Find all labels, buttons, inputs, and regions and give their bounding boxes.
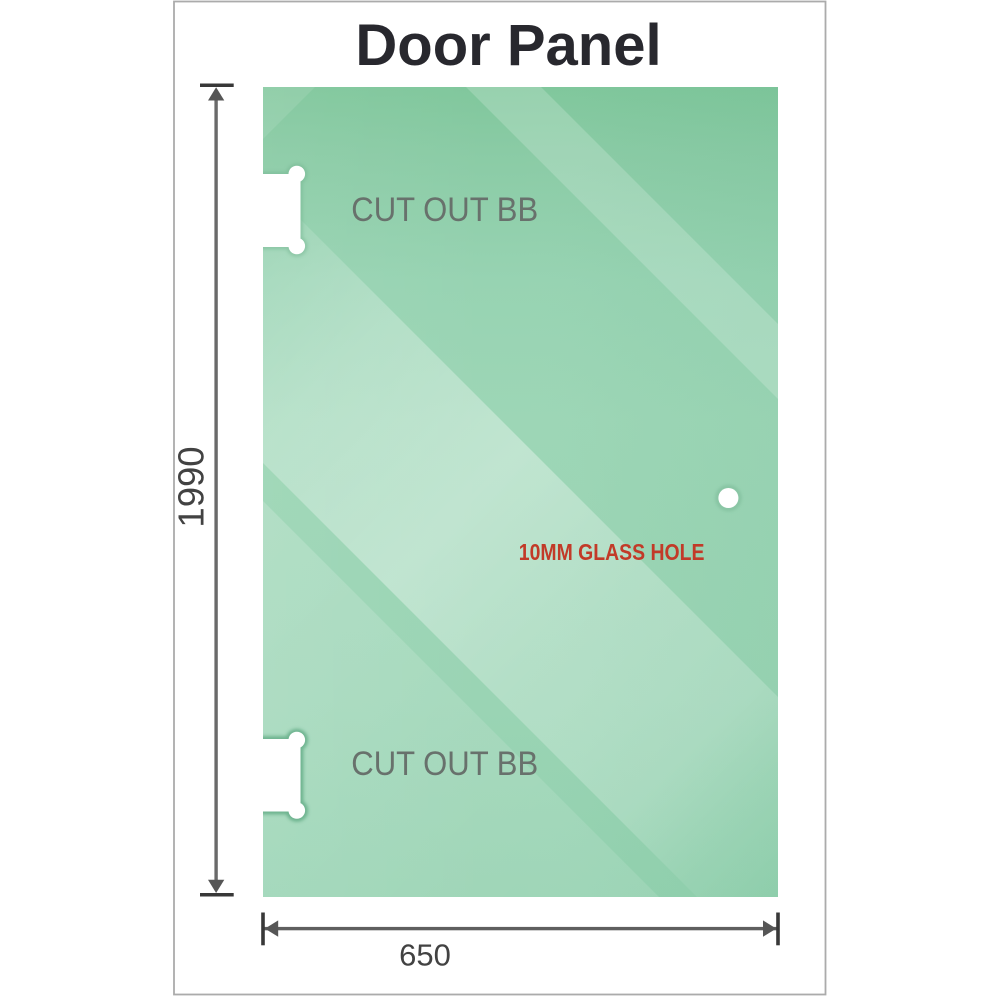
svg-text:CUT OUT BB: CUT OUT BB	[351, 743, 538, 782]
svg-text:CUT OUT BB: CUT OUT BB	[351, 189, 538, 228]
svg-text:Door Panel: Door Panel	[355, 13, 661, 78]
svg-text:1990: 1990	[171, 446, 212, 527]
svg-text:650: 650	[399, 937, 451, 972]
svg-text:10MM GLASS HOLE: 10MM GLASS HOLE	[519, 539, 705, 565]
